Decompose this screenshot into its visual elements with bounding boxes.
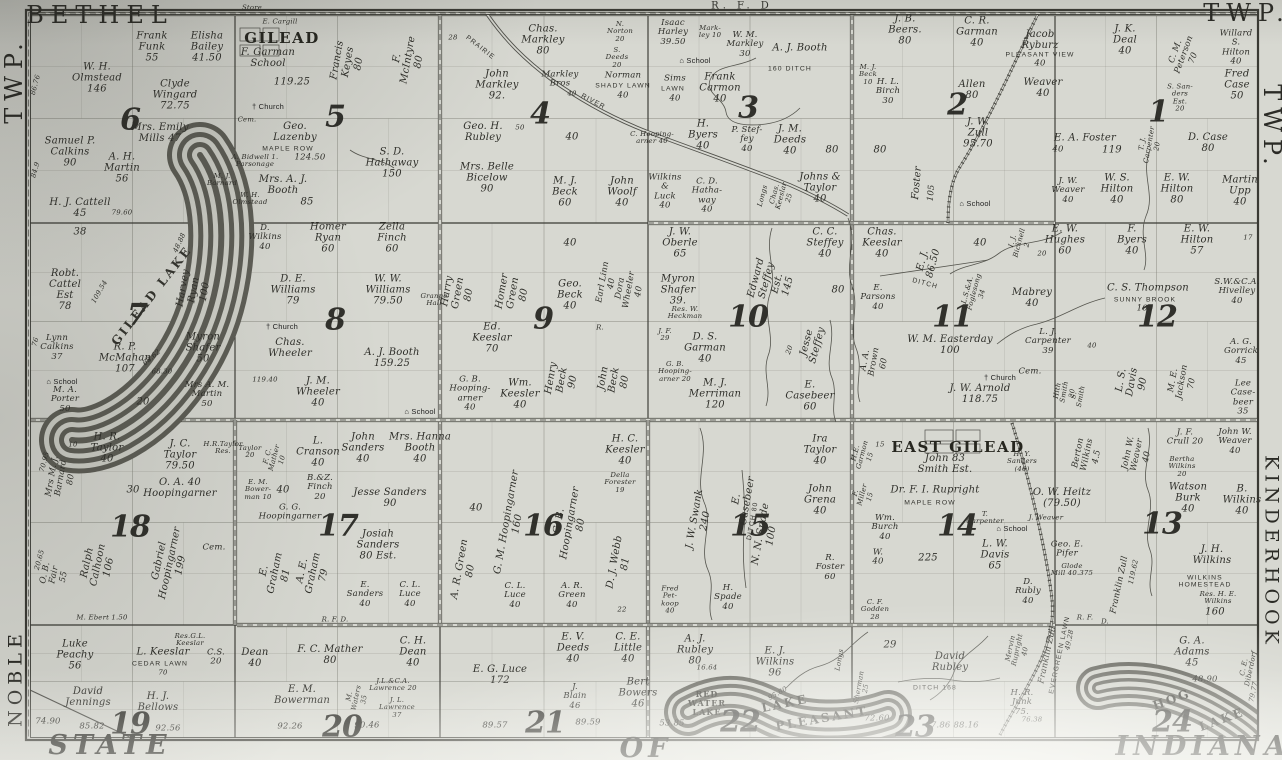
parcel-label: 89.57 (482, 721, 507, 730)
parcel-label: E. V. Deeds 40 (557, 632, 589, 665)
edge-label: TWP. (1203, 0, 1282, 26)
parcel-label: S. D. Hathaway 150 (366, 147, 419, 180)
parcel-label: 30 (126, 485, 139, 496)
parcel-label: M. E. Jackson 70 (1166, 362, 1200, 401)
parcel-label: Watson Burk 40 (1169, 482, 1207, 515)
parcel-label: 76 (31, 337, 40, 348)
parcel-label: E. J. 86.50 (914, 245, 943, 279)
parcel-label: H. C. Keesler 40 (605, 434, 644, 467)
parcel-label: A. A. Brown 60 (859, 345, 892, 379)
parcel-label: 38 (73, 227, 86, 238)
parcel-label: W. H. Olmstead 146 (72, 62, 122, 95)
parcel-label: 89.59 (575, 718, 600, 727)
parcel-label: E. W. Hughes 60 (1045, 224, 1085, 257)
parcel-label: J. M. Wheeler 40 (296, 376, 340, 409)
parcel-label: M. A. Porter 50 (51, 386, 79, 414)
parcel-label: J. W. Weaver 40 (1051, 177, 1084, 205)
parcel-label: M. Waters 35 (344, 683, 371, 712)
parcel-label: Mabrey 40 (1012, 287, 1052, 309)
parcel-label: 80 (873, 145, 886, 156)
parcel-label: C. M. Peterson 70 (1165, 32, 1205, 79)
parcel-label: 16.64 (697, 664, 718, 671)
parcel-label: Wm. Keesler 40 (500, 378, 539, 411)
parcel-label: Myron Shafer 39. (661, 274, 696, 307)
parcel-label: A. R. Green 80 (449, 538, 481, 602)
parcel-label: 119 (1102, 145, 1122, 156)
parcel-label: Wm. Burch 40 (871, 514, 898, 542)
parcel-label: H.R.Taylor Res. (203, 441, 242, 456)
parcel-label: Sherman 25 (853, 670, 873, 705)
parcel-label: R. F. D. (322, 616, 349, 623)
parcel-label: Mrs M. J. Barnard 80 (45, 455, 80, 500)
parcel-label: E. Parsons 40 (860, 284, 895, 312)
parcel-label: R. F. (1077, 614, 1093, 621)
parcel-label: F. C. Mather 80 (297, 644, 362, 666)
parcel-label: Ira Taylor 40 (804, 434, 837, 467)
parcel-label: 40 (1034, 59, 1045, 68)
parcel-label: L. S. Davis 90 (1113, 365, 1151, 399)
parcel-label: Dr. F. I. Rupright (891, 485, 980, 496)
parcel-label: Cem. (1018, 367, 1041, 376)
parcel-label: W. H. Olmstead (233, 192, 268, 207)
parcel-label: E. J. Wilkins 96 (756, 646, 795, 679)
parcel-label: Isaac Harley 39.50 (658, 19, 688, 47)
parcel-label: O. B. Fair 55 (39, 561, 71, 588)
section-number: 4 (530, 98, 550, 131)
parcel-label: 105 (927, 184, 938, 202)
parcel-label: 86.76 (30, 74, 42, 96)
parcel-label: 109.54 (91, 279, 110, 305)
parcel-label: David Rubley (932, 651, 968, 673)
parcel-label: F. C. Mather 10 (261, 442, 289, 474)
parcel-label: Cem. (238, 116, 257, 123)
parcel-label: H. R. Taylor 40 (91, 432, 124, 465)
parcel-label: D. J. Webb 81 (604, 535, 635, 592)
parcel-label: 40 (469, 503, 482, 514)
parcel-label: C. Hooping- arner 40 (630, 131, 674, 146)
parcel-label: S. Smith (1069, 384, 1087, 408)
parcel-label: A. G. Gorrick 45 (1224, 338, 1258, 366)
parcel-label: B.&Z. Finch 20 (307, 474, 333, 502)
parcel-label: Mrs. Hanna Booth 40 (389, 432, 451, 465)
parcel-label: 15 (875, 441, 884, 448)
parcel-label: 50 (515, 124, 524, 131)
parcel-label: John Sanders 40 (342, 432, 385, 465)
parcel-label: 40 (1052, 145, 1063, 154)
parcel-label: A. J. Booth 159.25 (364, 347, 419, 369)
parcel-label: 22 (617, 606, 626, 613)
parcel-label: Jacob Ryburz (1021, 29, 1058, 51)
parcel-label: D. Rubly 40 (1015, 578, 1041, 606)
section-number: 8 (325, 304, 345, 337)
parcel-label: 87.86 88.16 (925, 721, 979, 730)
parcel-label: 225 (918, 553, 938, 564)
parcel-label: 17 (1243, 234, 1252, 241)
farm-name-label: PRAIRIE (464, 34, 496, 61)
section-number: 22 (720, 706, 760, 739)
parcel-label: 40 (563, 238, 576, 249)
parcel-label: 79.77 (1248, 681, 1259, 703)
parcel-label: A. J. Rubley 80 (677, 634, 713, 667)
parcel-label: 40 (276, 485, 289, 496)
parcel-label: L. Cranson 40 (296, 436, 340, 469)
parcel-label: C. C. Steffey 40 (806, 227, 843, 260)
parcel-label: E. Cargill (262, 18, 297, 25)
parcel-label: 20 (1037, 250, 1046, 257)
parcel-label: J. L. Lawrence 37 (379, 697, 415, 719)
poi-label: ⌂ School (679, 57, 710, 65)
parcel-label: Res. H. E. Wilkins (1200, 591, 1237, 606)
parcel-label: Foster (910, 166, 924, 200)
parcel-label: Francis Keyes 80 (328, 40, 367, 85)
parcel-label: Lee Case- beer 35 (1231, 379, 1256, 416)
parcel-label: F. Miller 15 (850, 481, 877, 508)
parcel-label: E. M. Bowerman (274, 684, 330, 706)
parcel-label: 79.60 (112, 209, 133, 216)
parcel-label: W. M. Markley 30 (727, 31, 764, 59)
poi-label: ⌂ School (404, 408, 435, 416)
edge-label: TWP. (1259, 84, 1282, 172)
parcel-label: W. 40 (872, 549, 883, 568)
parcel-label: Harry Green 80 (439, 274, 477, 311)
parcel-label: Allen 80 (959, 79, 986, 101)
parcel-label: John Beck 80 (596, 364, 633, 395)
poi-label: ⌂ School (959, 200, 990, 208)
state-label: INDIANA (1116, 732, 1282, 760)
parcel-label: J. Weaver (1029, 514, 1063, 521)
parcel-label: E. Graham 81 (255, 549, 296, 597)
plat-map: BETHELTWP.R. F. DTWP.NOBLETWP.KINDERHOOK… (0, 0, 1282, 760)
parcel-label: 53.85 (659, 719, 684, 728)
section-number: 18 (110, 511, 150, 544)
parcel-label: C. D. Hatha- way 40 (692, 177, 723, 214)
parcel-label: M. J. Barnard (207, 173, 237, 188)
parcel-label: O. W. Heitz (79.50) (1033, 487, 1091, 509)
poi-label: † Church (984, 374, 1016, 382)
parcel-label: Chas. Keeslar 25 (768, 180, 796, 212)
parcel-label: 28 (448, 34, 457, 41)
parcel-label: C. H. Dean 40 (399, 636, 426, 669)
parcel-label: F. Byers 40 (1117, 224, 1147, 257)
parcel-label: C. R. Garman 40 (956, 16, 998, 49)
farm-name-label: RIVER (580, 93, 607, 112)
farm-name-label: 160 DITCH (768, 65, 812, 72)
parcel-label: Wilkins & Luck 40 (648, 173, 681, 210)
parcel-label: W. S. Hilton 40 (1101, 173, 1134, 206)
section-number: 1 (1148, 96, 1168, 129)
parcel-label: Elisha Bailey 41.50 (191, 31, 223, 64)
parcel-label: J. B. Beers. 80 (888, 14, 921, 47)
parcel-label: Dora Wheeler 40 (613, 269, 647, 311)
parcel-label: John W. Weaver 40 (1218, 428, 1252, 456)
farm-name-label: WILKINS HOMESTEAD (1179, 575, 1232, 590)
parcel-label: 76.38 (1022, 716, 1043, 723)
parcel-label: E. Sanders 40 (347, 581, 384, 609)
parcel-label: Berton Wilkins 4.5 (1071, 436, 1105, 474)
parcel-label: E. W. Hilton 80 (1161, 173, 1194, 206)
parcel-label: John 83 Smith Est. (918, 453, 973, 475)
section-number: 17 (318, 510, 358, 543)
parcel-label: Josiah Sanders 80 Est. (357, 529, 400, 562)
parcel-label: 80 (831, 285, 844, 296)
parcel-label: Mervin Rupright 40 (1004, 632, 1032, 669)
parcel-label: Zella Finch 60 (377, 222, 407, 255)
parcel-label: M. J. Beck 10 (859, 64, 877, 86)
parcel-label: Homer Ryan 60 (310, 222, 346, 255)
parcel-label: Frank Carmon 40 (699, 72, 741, 105)
parcel-label: L.S.&A. Foglesong 34 (960, 271, 991, 313)
parcel-label: Chas. Markley 80 (521, 24, 564, 57)
parcel-label: H. Spade 40 (714, 584, 742, 612)
parcel-label: L. J. Carpenter 39 (1025, 328, 1071, 356)
parcel-label: 20 (785, 344, 795, 355)
parcel-label: J. C. Taylor 79.50 (164, 439, 197, 472)
parcel-label: Dean 40 (241, 647, 268, 669)
parcel-label: J. W. Zull 95.70 (963, 117, 993, 150)
parcel-label: Jesse Steffey (797, 323, 828, 365)
parcel-label: Geo. H. Rubley (463, 121, 502, 143)
parcel-label: Chas. Keeslar 40 (862, 227, 902, 260)
section-number: 3 (738, 92, 758, 125)
parcel-label: Homer Green 80 (494, 272, 533, 313)
parcel-label: M. J. Beck 60 (552, 176, 578, 209)
farm-name-label: SHADY LAWN (595, 82, 651, 89)
parcel-label: Myron Shafer 50 (186, 332, 221, 365)
parcel-label: G. B. Hooping- arner 40 (449, 375, 490, 412)
parcel-label: Res. W. Heckman (668, 306, 703, 321)
farm-name-label: LAWN (661, 85, 685, 92)
map-labels: BETHELTWP.R. F. DTWP.NOBLETWP.KINDERHOOK… (0, 0, 1282, 760)
parcel-label: David Jennings (65, 686, 111, 708)
parcel-label: J. W. Arnold 118.75 (950, 383, 1011, 405)
parcel-label: E. A. Foster (1054, 133, 1116, 144)
parcel-label: C.S. 20 (207, 649, 225, 668)
parcel-label: 68.30 (152, 368, 173, 375)
parcel-label: J. F. 29 (658, 328, 672, 343)
parcel-label: John Markley 92. (475, 69, 518, 102)
parcel-label: Geo. Lazenby (273, 121, 317, 143)
parcel-label: R. P. McMahan 107 (99, 342, 151, 375)
lake-label: RED WATER LAKE (688, 690, 726, 716)
parcel-label: J. M. Deeds 40 (774, 124, 806, 157)
edge-label: TWP. (1, 36, 27, 124)
parcel-label: Martin Upp 40 (1222, 175, 1258, 208)
parcel-label: Fred Pet- koop 40 (661, 586, 679, 615)
parcel-label: W. M. Easterday 100 (907, 334, 993, 356)
parcel-label: 90.46 (354, 721, 379, 730)
section-number: 21 (525, 707, 565, 740)
parcel-label: A. J. Booth (772, 43, 827, 54)
parcel-label: S.W.&C.A. Hivelley 40 (1214, 278, 1259, 306)
edge-label: NOBLE (6, 629, 27, 727)
parcel-label: 40 (617, 91, 628, 100)
parcel-label: F. Garman School (241, 47, 295, 69)
parcel-label: Henry Beck 90 (543, 361, 581, 399)
rfd-label: R. F. D (711, 1, 773, 12)
parcel-label: R. (596, 324, 604, 331)
parcel-label: Jesse Sanders 90 (353, 487, 426, 509)
parcel-label: H. L. Birch 30 (876, 78, 900, 106)
parcel-label: E. W. Hilton 57 (1181, 224, 1214, 257)
parcel-label: M. Ebert 1.50 (76, 614, 127, 621)
parcel-label: E. M. Bower- man 10 (244, 479, 271, 501)
parcel-label: Willard S. Hilton 40 (1220, 29, 1253, 66)
section-number: 5 (325, 101, 345, 134)
parcel-label: Samuel P. Calkins 90 (45, 136, 96, 169)
edge-label: KINDERHOOK (1261, 455, 1282, 649)
parcel-label: Res.G.L. Keeslar (175, 633, 206, 648)
parcel-label: Longs (835, 648, 846, 671)
parcel-label: 100 (1137, 304, 1154, 313)
parcel-label: H. J. Cattell 45 (49, 197, 110, 219)
parcel-label: Fred Case 50 (1224, 69, 1249, 102)
parcel-label: 92.26 (277, 722, 302, 731)
parcel-label: 40 (669, 94, 680, 103)
parcel-label: G. B. Hooping- arner 20 (658, 361, 692, 383)
parcel-label: D. E. Williams 79 (270, 274, 315, 307)
poi-label: ⌂ School (996, 525, 1027, 533)
parcel-label: 119.25 (274, 77, 310, 88)
parcel-label: 40 (1087, 342, 1096, 349)
parcel-label: P. Stef- fey 40 (732, 126, 763, 154)
parcel-label: Luke Peachy 56 (56, 639, 93, 672)
parcel-label: John W. Weaver 40 (1121, 436, 1155, 475)
parcel-label: C. E. Little 40 (614, 632, 642, 665)
parcel-label: J. K. Deal 40 (1113, 24, 1137, 57)
parcel-label: 29 (883, 640, 896, 651)
village-label: GILEAD (244, 30, 319, 47)
parcel-label: E. G. Luce 172 (473, 664, 527, 686)
state-label: OF (620, 734, 673, 760)
parcel-label: 160 (1205, 607, 1225, 618)
parcel-label: Chas. Wheeler (268, 337, 312, 359)
parcel-label: Markley Bros (542, 71, 579, 90)
parcel-label: 85.82 (79, 722, 104, 731)
parcel-label: J. W. Swank 240 (684, 488, 716, 551)
parcel-label: J. F. Crull 20 (1167, 429, 1204, 448)
parcel-label: A. H. Martin 56 (104, 152, 140, 185)
parcel-label: 72.60 (864, 714, 889, 723)
parcel-label: Sims (664, 74, 686, 83)
parcel-label: L. W. Davis 65 (981, 539, 1010, 572)
parcel-label: C. L. Luce 40 (399, 581, 421, 609)
parcel-label: M. J. Merriman 120 (689, 378, 741, 411)
parcel-label: D. Case 80 (1188, 132, 1228, 154)
section-number: 10 (728, 301, 768, 334)
parcel-label: J.L.&C.A. Lawrence 20 (369, 678, 417, 693)
parcel-label: Bertha Wilkins 20 (1168, 456, 1195, 478)
parcel-label: H.E. Garmon 15 (849, 438, 878, 472)
parcel-label: John Woolf 40 (607, 176, 637, 209)
parcel-label: D. (1101, 618, 1109, 625)
parcel-label: Geo. Beck 40 (557, 279, 583, 312)
parcel-label: 84.9 (30, 161, 41, 178)
parcel-label: Mrs. Emily Mills 47 (131, 122, 188, 144)
parcel-label: I. J. Bicknell 2 (1006, 226, 1035, 260)
parcel-label: Mrs A. M. Martin 50 (185, 381, 230, 409)
parcel-label: Johns & Taylor 40 (799, 172, 841, 205)
section-number: 9 (533, 303, 553, 336)
parcel-label: C. S. Thompson (1107, 283, 1189, 294)
farm-name-label: DITCH 168 (913, 684, 957, 691)
parcel-label: 40 (973, 238, 986, 249)
poi-label: † Church (266, 323, 298, 331)
parcel-label: A. E. Graham 79 (293, 549, 334, 597)
parcel-label: Bert Bowers 46 (619, 677, 658, 710)
parcel-label: H. Y. Sanders (46) (1007, 451, 1037, 473)
parcel-label: 70 (158, 669, 167, 676)
farm-name-label: MAPLE ROW (904, 499, 955, 506)
edge-label: BETHEL (26, 2, 174, 28)
parcel-label: N. Norton 20 (607, 21, 633, 43)
parcel-label: O. A. 40 Hoopingarner (143, 477, 216, 499)
parcel-label: Clyde Wingard 72.75 (153, 79, 198, 112)
parcel-label: Glode Mill 40.375 (1051, 563, 1093, 578)
parcel-label: C. L. Luce 40 (504, 582, 526, 610)
parcel-label: C. F. Godden 28 (861, 599, 889, 621)
lake-label: LAKE (1198, 706, 1247, 735)
parcel-label: T. J. Carpenter 20 (1136, 125, 1164, 166)
parcel-label: Ed. Keeslar 70 (472, 322, 512, 355)
parcel-label: 40 (565, 132, 578, 143)
parcel-label: E. Casebeer 60 (785, 380, 834, 413)
parcel-label: Della Forester 19 (604, 472, 635, 494)
parcel-label: S. San- ders Est. 20 (1167, 84, 1193, 113)
parcel-label: Mark- ley 10 (699, 25, 721, 40)
parcel-label: Harvey Ryan 100 (174, 268, 213, 311)
parcel-label: Taylor 20 (239, 445, 262, 460)
parcel-label: W. W. Williams 79.50 (365, 274, 410, 307)
parcel-label: D. Wilkins 40 (248, 224, 281, 252)
parcel-label: Robt. Cattel Est 78 (49, 268, 81, 312)
parcel-label: G. B. Hoopingarner 80 (547, 484, 592, 562)
parcel-label: F. McIntyre 80 (388, 33, 429, 86)
parcel-label: R. Foster 60 (816, 554, 845, 582)
parcel-label: L. Keeslar (136, 647, 189, 658)
parcel-label: S. Deeds 20 (606, 47, 629, 69)
parcel-label: D. S. Garman 40 (684, 332, 726, 365)
parcel-label: Norman (605, 71, 641, 80)
parcel-label: 74.90 (35, 717, 60, 726)
farm-name-label: CEDAR LAWN (132, 660, 188, 667)
parcel-label: 40 (567, 90, 576, 97)
parcel-label: 119.62 (1128, 559, 1140, 585)
poi-label: † Church (252, 103, 284, 111)
parcel-label: Mrs. Belle Bicelow 90 (460, 162, 514, 195)
parcel-label: H. J. Bellows (138, 691, 179, 713)
parcel-label: J. H. Wilkins (1193, 544, 1232, 566)
parcel-label: J. W. Oberle 65 (662, 227, 698, 260)
parcel-label: John Grena 40 (804, 484, 836, 517)
parcel-label: G. A. Adams 45 (1174, 636, 1209, 669)
parcel-label: A. Bidwell 1. Parsonage (232, 154, 279, 169)
parcel-label: G. G. Hoopingarner (259, 504, 322, 523)
parcel-label: Store (242, 4, 262, 11)
parcel-label: 80 (825, 145, 838, 156)
parcel-label: A. R. Green 40 (558, 582, 585, 610)
parcel-label: H. R. Junk 75. (1011, 689, 1034, 717)
parcel-label: Cem. (202, 543, 225, 552)
parcel-label: Lynn Calkins 37 (40, 334, 73, 362)
parcel-label: 124.50 (295, 153, 326, 162)
parcel-label: 49.28 (1064, 629, 1075, 651)
parcel-label: 10 (68, 441, 77, 448)
parcel-label: 48.90 (1192, 675, 1217, 684)
parcel-label: Frank Funk 55 (136, 31, 167, 64)
parcel-label: J. Blain 46 (563, 683, 586, 711)
parcel-label: 92.56 (155, 724, 180, 733)
parcel-label: Gabriel Hoopingarner 199 (146, 524, 194, 603)
